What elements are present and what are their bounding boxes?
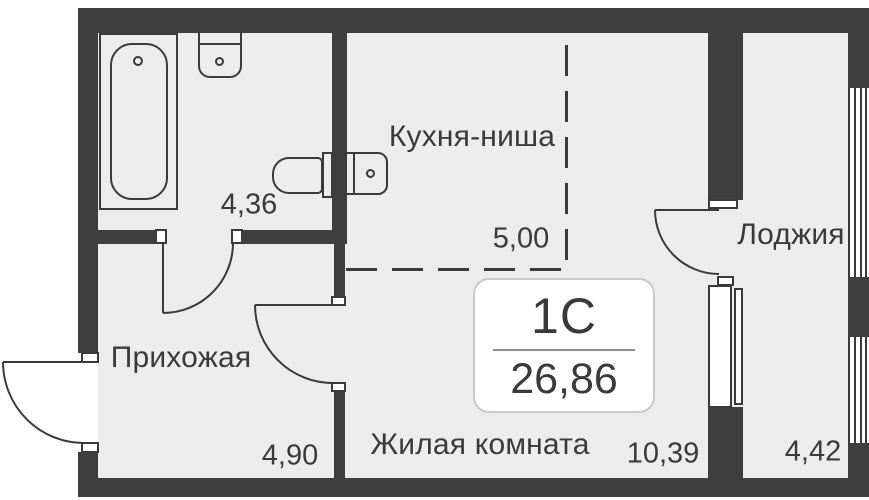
bathroom-area: 4,36 [221,189,277,222]
loggia-corner-top [848,33,869,88]
kitchen-niche-label: Кухня-ниша [389,120,555,154]
washbasin-drain-icon [215,57,224,66]
kitchen-niche-area: 5,00 [493,223,549,256]
toilet-bowl-icon [272,157,323,194]
living-room-area: 10,39 [627,438,700,471]
entrance-door-jamb-top [81,352,99,363]
entrance-door-arc [3,362,84,443]
wall-bathroom-bottom-left [98,230,157,244]
washbasin-line [199,43,241,45]
wall-bottom [78,478,869,497]
wall-bathroom-kitchen [332,33,347,230]
wall-loggia-upper [708,33,743,200]
kitchen-sink-divider [353,153,355,194]
loggia-glazing-lower-window [848,337,867,443]
wall-top [78,8,869,33]
loggia-glazing-upper-window [848,88,867,277]
bathroom-door-jamb-right [231,229,243,244]
badge-divider [493,349,635,351]
living-room-label: Жилая комната [370,428,589,462]
wall-left-upper [78,8,98,353]
kitchen-sink-drain-icon [366,169,375,178]
unit-type-label: 1С [531,291,597,341]
loggia-door-jamb-top [708,199,738,209]
wall-loggia-lower [708,407,743,478]
bathtub-basin-icon [110,43,168,200]
living-door-jamb-bottom [331,382,346,392]
wall-bathroom-bottom-right [242,230,347,244]
hallway-area: 4,90 [262,440,318,473]
entrance-door-jamb-bottom [81,442,99,453]
bathroom-door-jamb-left [155,229,167,244]
loggia-corner-bottom [848,443,869,478]
loggia-window-block [708,285,732,408]
washbasin-icon [198,33,242,78]
loggia-label: Лоджия [737,218,845,252]
living-door-jamb-top [331,296,346,306]
wall-hallway-upper [334,244,345,297]
loggia-door-jamb-bottom [717,276,734,286]
loggia-window-frame [734,288,743,405]
bathtub-drain-icon [133,56,143,66]
unit-badge: 1С 26,86 [473,278,655,413]
floor-plan: Кухня-ниша 5,00 4,36 Прихожая 4,90 Жилая… [0,0,869,500]
loggia-area: 4,42 [785,436,841,469]
hallway-label: Прихожая [111,341,252,375]
wall-hallway-lower [334,391,345,478]
loggia-pier [848,277,869,337]
unit-total-area: 26,86 [510,358,618,401]
toilet-tank-icon [322,152,333,198]
